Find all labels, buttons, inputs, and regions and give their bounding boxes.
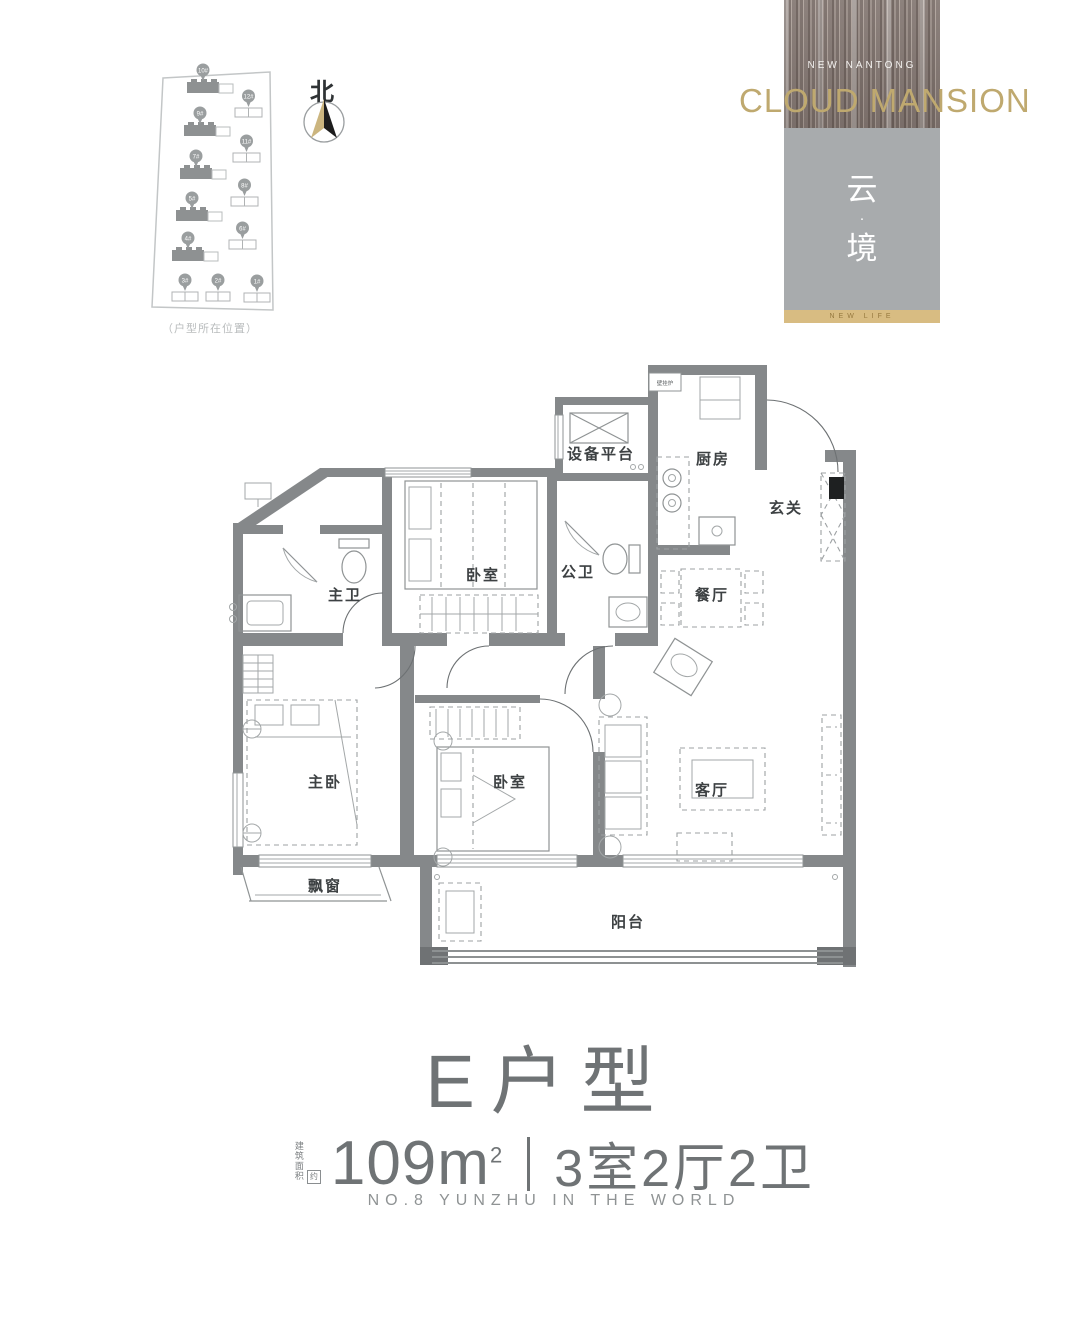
- room-label-equipment: 设备平台: [567, 445, 635, 463]
- site-plan-caption: （户型所在位置）: [150, 320, 270, 336]
- cabinet-icon: [439, 883, 481, 941]
- room-label-master-bedroom: 主卧: [308, 773, 342, 791]
- building-pin-label: 7#: [193, 154, 200, 160]
- tagline: NO.8 YUNZHU IN THE WORLD: [14, 1192, 1080, 1210]
- logo-gold-banner: NEW LIFE: [784, 310, 940, 323]
- seal-dot: ·: [860, 215, 865, 223]
- site-building: 7#: [180, 150, 226, 180]
- seal-char-2: 境: [847, 233, 878, 264]
- building-pin-label: 4#: [185, 236, 192, 242]
- site-building: 11#: [233, 135, 260, 163]
- site-plan-map: 10#9#7#5#4#12#11#8#6#3#2#1#: [140, 55, 310, 320]
- bed-icon: [247, 700, 357, 845]
- site-building: 6#: [229, 222, 256, 250]
- building-pin-label: 5#: [189, 196, 196, 202]
- area-superscript: 2: [490, 1142, 503, 1167]
- bedroom-south-furniture: [430, 707, 549, 866]
- boiler-label: 壁挂炉: [657, 379, 674, 387]
- site-building: 1#: [244, 275, 270, 303]
- coffee-table-icon: [680, 748, 765, 810]
- site-building: 12#: [235, 90, 262, 118]
- logo-seal: 云 · 境: [784, 128, 940, 310]
- building-pin-label: 11#: [242, 139, 252, 145]
- compass-icon: [300, 96, 348, 146]
- spec-row: 建筑面积 约 109m2 3室2厅2卫: [14, 1126, 1080, 1201]
- brand-logo-block: NEW NANTONG CLOUD MANSION 云 · 境 NEW LIFE: [784, 0, 940, 323]
- site-buildings: 10#9#7#5#4#12#11#8#6#3#2#1#: [172, 64, 270, 303]
- logo-subtitle: NEW NANTONG: [784, 60, 940, 71]
- area-approx-box: 约: [307, 1170, 321, 1184]
- building-pin-label: 8#: [241, 183, 248, 189]
- toilet-icon: [603, 544, 627, 574]
- counter: [657, 457, 689, 549]
- area-prefix-label: 建筑面积: [293, 1141, 304, 1187]
- site-building: 5#: [176, 192, 222, 222]
- vanity-icon: [609, 597, 647, 627]
- kitchen-sink-icon: [699, 517, 735, 545]
- sofa-icon: [599, 717, 647, 835]
- room-label-living: 客厅: [694, 781, 729, 799]
- fridge-icon: [700, 377, 740, 419]
- wardrobe-icon: [430, 707, 520, 739]
- building-pin-label: 2#: [215, 278, 222, 284]
- room-label-master-bath: 主卫: [328, 586, 362, 604]
- shaft-block: [829, 477, 844, 499]
- building-pin-label: 9#: [197, 111, 204, 117]
- site-building: 4#: [172, 232, 218, 262]
- stove-burner-icon: [663, 494, 681, 512]
- room-label-bedroom-north: 卧室: [466, 566, 500, 584]
- building-pin-label: 3#: [182, 278, 189, 284]
- spec-divider: [527, 1137, 530, 1191]
- building-pin-label: 10#: [198, 68, 209, 74]
- stove-burner-icon: [663, 469, 681, 487]
- layout-spec: 3室2厅2卫: [554, 1126, 815, 1201]
- site-building: 3#: [172, 274, 198, 302]
- master-bath-fixtures: [230, 483, 370, 631]
- living-room-furniture: [599, 638, 841, 861]
- bedroom-north-furniture: [405, 481, 538, 633]
- site-building: 9#: [184, 107, 230, 137]
- fan-icon: [599, 694, 621, 716]
- area-value: 109m2: [331, 1128, 503, 1199]
- master-bedroom-furniture: [243, 655, 357, 845]
- building-pin-label: 6#: [239, 226, 246, 232]
- logo-title: CLOUD MANSION: [739, 82, 985, 120]
- room-label-foyer: 玄关: [769, 499, 803, 517]
- building-pin-label: 1#: [254, 279, 261, 285]
- bed-icon: [437, 747, 549, 851]
- room-label-bedroom-south: 卧室: [493, 773, 527, 791]
- room-label-bay-window: 飘窗: [308, 877, 342, 895]
- walls: [233, 365, 856, 967]
- building-pin-label: 12#: [243, 94, 254, 100]
- tv-cabinet-icon: [822, 715, 841, 835]
- balcony-fixtures: [435, 875, 838, 942]
- site-building: 8#: [231, 179, 258, 207]
- seal-char-1: 云: [847, 174, 878, 205]
- room-label-dining: 餐厅: [695, 586, 729, 604]
- room-label-balcony: 阳台: [611, 913, 645, 931]
- unit-title: E户型: [0, 1022, 1080, 1129]
- site-building: 10#: [187, 64, 233, 94]
- room-label-kitchen: 厨房: [696, 450, 730, 468]
- area-number: 109m: [331, 1129, 490, 1198]
- armchair-icon: [654, 638, 713, 695]
- floor-plan: 壁挂炉: [225, 355, 875, 995]
- toilet-icon: [342, 551, 366, 583]
- site-building: 2#: [206, 274, 230, 302]
- foyer-closet: [821, 473, 845, 561]
- room-label-public-bath: 公卫: [561, 564, 595, 581]
